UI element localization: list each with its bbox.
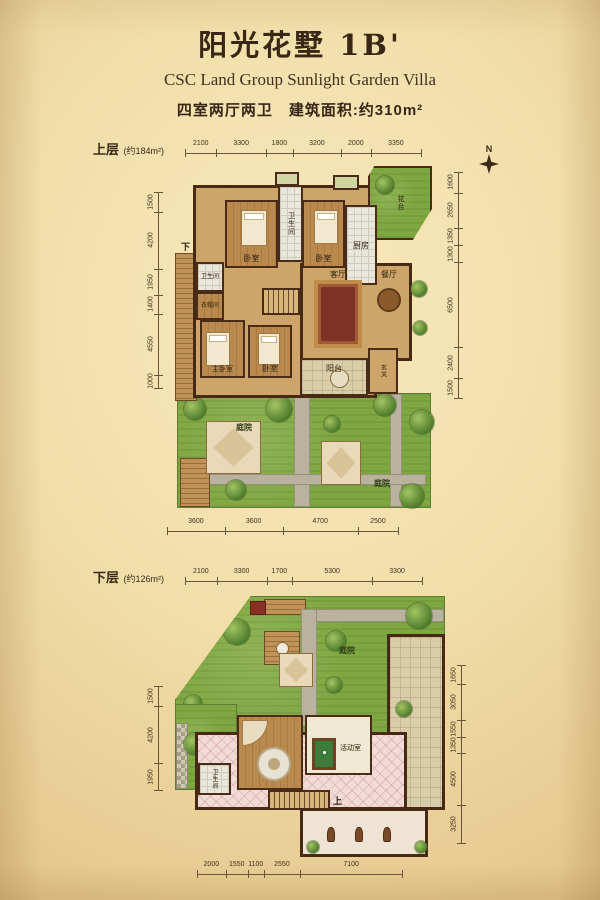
dim-segment: 4500 [452, 753, 468, 805]
compass-north-label: N [486, 144, 493, 154]
upper-courtyard: 庭院 庭院 [177, 393, 431, 508]
garden-steps [264, 599, 306, 615]
bedroom-a-label: 卧室 [227, 253, 276, 264]
compass-icon [479, 154, 499, 174]
tree-icon [324, 416, 340, 432]
room-living: 客厅 [308, 266, 368, 360]
bath-left-label: 卫生间 [198, 271, 222, 280]
living-label: 客厅 [308, 269, 368, 280]
dim-segment: 1000 [149, 375, 165, 388]
tree-icon [224, 619, 250, 645]
courtyard-label: 庭院 [236, 422, 252, 433]
courtyard-label: 庭院 [374, 478, 390, 489]
tent-icon [279, 653, 313, 687]
tree-icon [226, 480, 246, 500]
tree-icon [411, 281, 427, 297]
lower-floor-section-label: 下层 (约126m²) [93, 567, 164, 587]
lower-floor-area: (约126m²) [123, 574, 164, 584]
room-bedroom-c: 卧室 [248, 325, 292, 378]
compass: N [479, 144, 499, 174]
dim-segment: 4200 [149, 212, 165, 268]
bedroom-c-label: 卧室 [250, 363, 290, 374]
dim-segment: 1550 [452, 720, 468, 738]
tent-icon [321, 441, 361, 485]
tree-icon [406, 603, 432, 629]
garden-path [294, 394, 310, 507]
bed-icon [314, 210, 338, 244]
stairs-down-label: 下 [181, 240, 190, 253]
dim-segment: 1950 [149, 763, 165, 790]
upper-dims-bottom: 3600360047002500 [167, 519, 398, 535]
display-stand-icon [355, 827, 363, 842]
header: 阳光花墅 1B' CSC Land Group Sunlight Garden … [0, 22, 600, 120]
kitchen-label: 厨房 [347, 240, 375, 251]
room-cloakroom: 衣帽间 [196, 292, 224, 320]
stairs-up [268, 790, 330, 810]
room-dining: 餐厅 [368, 266, 410, 330]
dim-segment: 2550 [264, 862, 301, 878]
tree-icon [376, 176, 394, 194]
bed-icon [258, 333, 280, 365]
stairs-up-label: 上 [333, 794, 342, 807]
dim-segment: 3200 [293, 141, 341, 157]
dim-segment: 2100 [185, 569, 217, 585]
brochure-page: 阳光花墅 1B' CSC Land Group Sunlight Garden … [0, 0, 600, 900]
courtyard-label: 庭院 [339, 645, 355, 656]
bath-top-label: 卫生间 [286, 212, 296, 236]
tree-icon [413, 321, 427, 335]
dim-segment: 2500 [358, 519, 398, 535]
garden-tile-path [176, 723, 188, 789]
dim-segment: 5300 [292, 569, 372, 585]
dim-segment: 1400 [149, 295, 165, 314]
tree-icon [326, 677, 342, 693]
lower-floorplan: 庭院 活动室 卫生间 上 [175, 592, 445, 858]
room-bedroom-a: 卧室 [225, 200, 278, 268]
dim-segment: 1950 [149, 269, 165, 295]
master-bedroom-label: 主卧室 [202, 364, 243, 374]
dim-segment: 3300 [216, 141, 265, 157]
dim-segment: 2000 [197, 862, 226, 878]
upper-dims-right: 1600265013501300650024001500 [449, 172, 465, 398]
room-activity: 活动室 [305, 715, 372, 775]
planter [275, 172, 299, 186]
dim-segment: 1550 [226, 862, 248, 878]
bedroom-b-label: 卧室 [304, 253, 343, 264]
dim-segment: 1500 [149, 192, 165, 212]
foyer-label: 玄关 [379, 364, 388, 378]
rug-icon [314, 280, 362, 348]
dim-segment: 3300 [372, 569, 422, 585]
dim-segment: 3350 [371, 141, 421, 157]
dim-segment: 7100 [300, 862, 402, 878]
dining-table-icon [377, 288, 401, 312]
bed-icon [206, 332, 230, 366]
dim-segment: 1350 [452, 737, 468, 753]
bed-icon [241, 210, 267, 246]
dim-segment: 4200 [149, 706, 165, 763]
garden-path [186, 474, 426, 485]
round-rug-icon [257, 747, 291, 781]
dim-segment: 6500 [449, 262, 465, 347]
display-stand-icon [327, 827, 335, 842]
page-subtitle: CSC Land Group Sunlight Garden Villa [0, 70, 600, 90]
tree-icon [266, 396, 292, 422]
tent-icon [206, 421, 261, 474]
upper-dims-top: 210033001800320020003350 [185, 141, 421, 157]
room-family [237, 715, 303, 790]
tree-icon [307, 841, 319, 853]
dim-segment: 1600 [449, 172, 465, 193]
dim-segment: 1500 [449, 378, 465, 398]
balcony-label: 阳台 [302, 363, 366, 374]
dim-segment: 2650 [449, 193, 465, 228]
tree-icon [415, 841, 427, 853]
tree-icon [400, 484, 424, 508]
lower-dims-top: 21003300170053003300 [185, 569, 422, 585]
room-master-bedroom: 主卧室 [200, 320, 245, 378]
upper-floor-area: (约184m²) [123, 146, 164, 156]
activity-label: 活动室 [331, 743, 370, 753]
dim-segment: 1700 [267, 569, 293, 585]
dim-segment: 4700 [283, 519, 358, 535]
dim-segment: 1500 [149, 686, 165, 706]
dim-segment: 4550 [149, 314, 165, 375]
room-bedroom-b: 卧室 [302, 200, 345, 268]
dim-segment: 1300 [449, 245, 465, 262]
tree-icon [410, 410, 434, 434]
bath-lower-label: 卫生间 [210, 769, 219, 790]
dim-segment: 1350 [449, 228, 465, 246]
unit-spec: 四室两厅两卫 建筑面积:约310m² [0, 99, 600, 120]
upper-dims-left: 150042001950140045501000 [149, 192, 165, 388]
dim-segment: 2400 [449, 347, 465, 378]
lower-floor-name: 下层 [93, 570, 119, 585]
upper-floor-section-label: 上层 (约184m²) [93, 139, 164, 159]
tree-icon [396, 701, 412, 717]
dim-segment: 3600 [167, 519, 225, 535]
room-foyer: 玄关 [368, 348, 398, 394]
flower-terrace-label: 花台 [395, 195, 405, 211]
lower-dims-left: 150042001950 [149, 686, 165, 790]
dim-segment: 1650 [452, 665, 468, 684]
room-bath-top: 卫生间 [278, 185, 303, 262]
dim-segment: 3300 [217, 569, 267, 585]
flower-terrace: 花台 [368, 166, 432, 240]
dim-segment: 3600 [225, 519, 283, 535]
room-balcony: 阳台 [300, 358, 368, 396]
dim-segment: 2000 [341, 141, 371, 157]
dim-segment: 1100 [248, 862, 264, 878]
lower-dims-bottom: 20001550110025507100 [197, 862, 402, 878]
tree-icon [184, 398, 206, 420]
room-bath-left: 卫生间 [196, 262, 224, 292]
dim-segment: 1800 [266, 141, 293, 157]
room-cellar [300, 808, 428, 857]
cloakroom-label: 衣帽间 [198, 300, 222, 309]
upper-floor-name: 上层 [93, 142, 119, 157]
planter [333, 175, 359, 190]
stairs-down [262, 288, 300, 315]
dim-segment: 3250 [452, 805, 468, 843]
upper-floorplan: 庭院 庭院 下 花台 卧室 卫生间 卧室 厨房 [175, 163, 433, 510]
sofa-icon [242, 720, 268, 746]
page-title: 阳光花墅 1B' [0, 22, 600, 64]
lower-dims-right: 165030501550135045003250 [452, 665, 468, 843]
dining-label: 餐厅 [368, 269, 410, 280]
tree-icon [374, 394, 396, 416]
dim-segment: 3050 [452, 684, 468, 719]
display-stand-icon [383, 827, 391, 842]
room-bath-lower: 卫生间 [198, 763, 231, 795]
dim-segment: 2100 [185, 141, 216, 157]
entry-mat [250, 601, 266, 615]
